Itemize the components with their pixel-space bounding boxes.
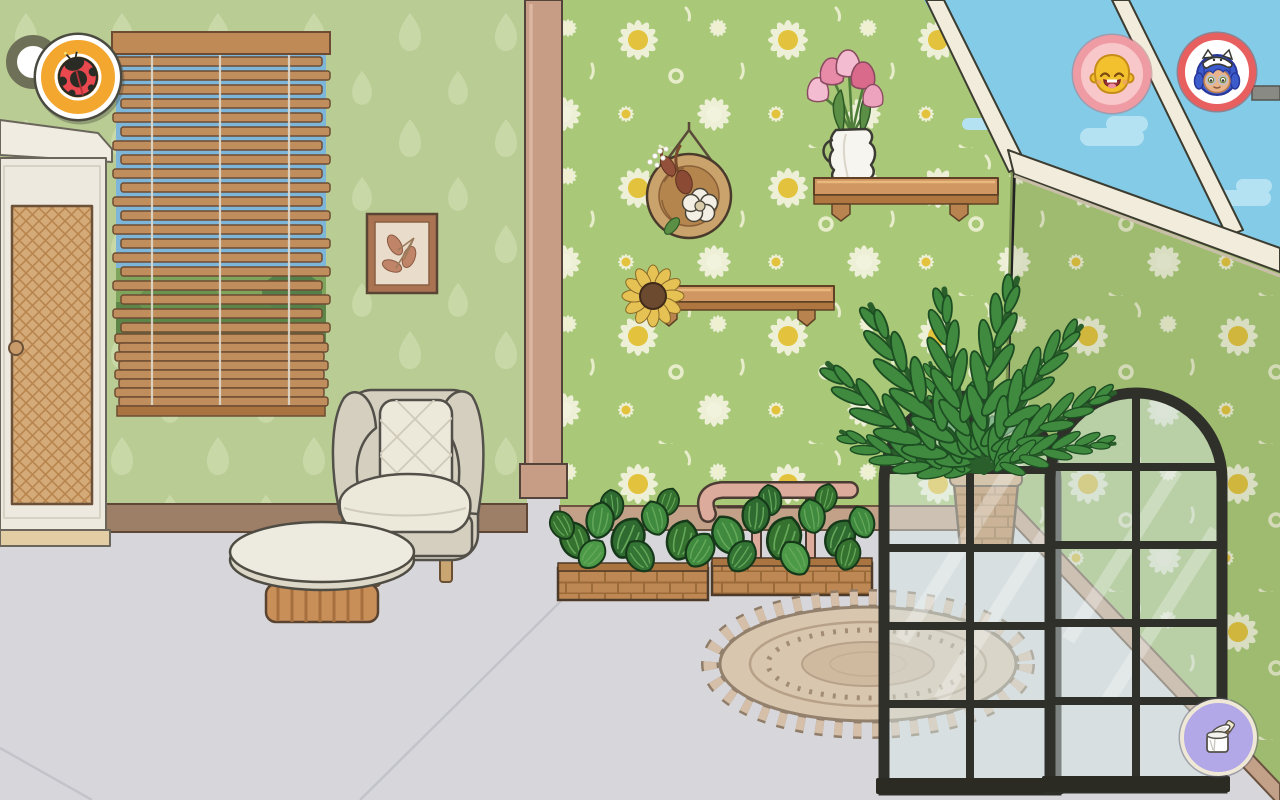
ladybug-icon (52, 51, 104, 103)
vase (830, 129, 875, 180)
framed-leaf-picture[interactable] (367, 214, 437, 293)
corner-post (520, 0, 567, 498)
blind-header (112, 32, 330, 54)
roof-bar (1252, 86, 1280, 100)
planter-box-left[interactable] (558, 563, 708, 600)
paint-tool-button[interactable] (1180, 699, 1257, 776)
wardrobe[interactable] (0, 120, 112, 546)
smiling-face-icon (1088, 50, 1136, 98)
character-ladybug-button[interactable] (36, 35, 120, 119)
paint-can-brush-icon (1196, 715, 1242, 761)
game-room-scene (0, 0, 1280, 800)
character-blue-button[interactable] (1178, 33, 1256, 111)
rattan-door (12, 206, 92, 504)
door-knob (9, 341, 23, 355)
window-with-bamboo-blinds[interactable] (112, 32, 330, 416)
cat-hat-character-icon (1191, 46, 1243, 98)
character-yellow-button[interactable] (1073, 35, 1151, 113)
